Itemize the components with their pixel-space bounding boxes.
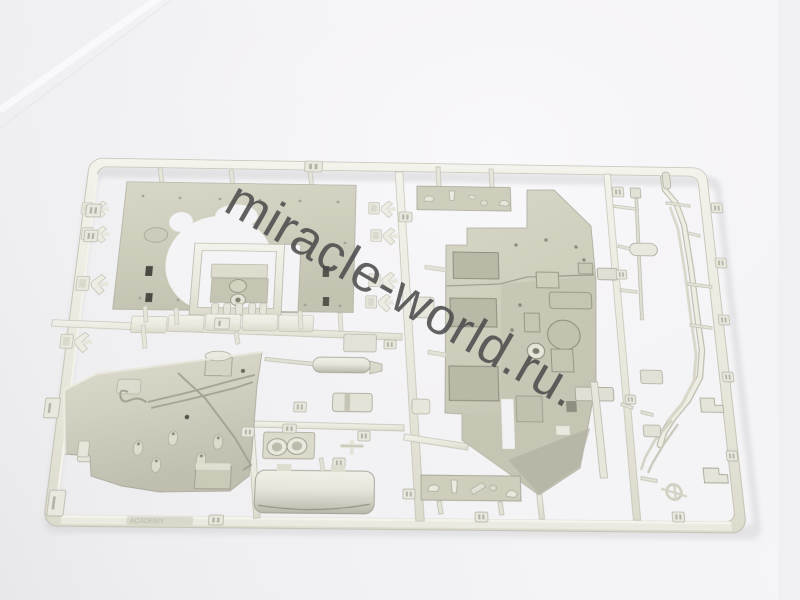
svg-text:miracle-world.ru.: miracle-world.ru. — [216, 170, 590, 419]
